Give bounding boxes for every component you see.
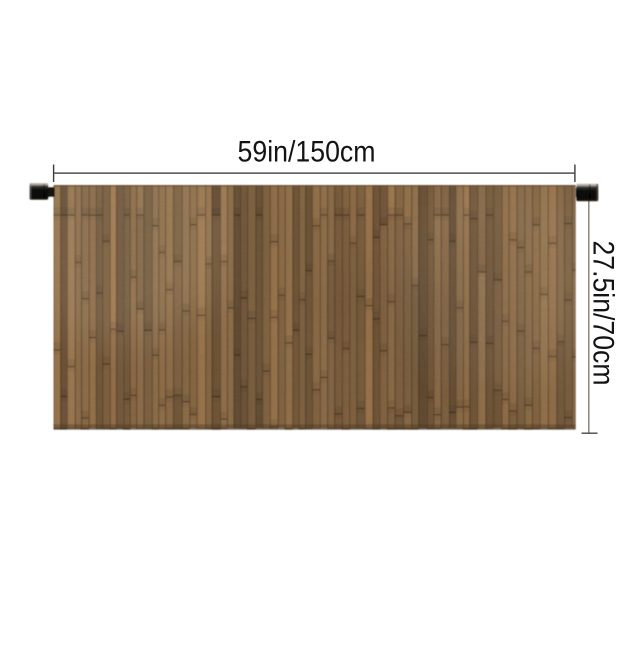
svg-text:27.5in/70cm: 27.5in/70cm: [587, 241, 620, 386]
svg-text:59in/150cm: 59in/150cm: [238, 136, 376, 169]
